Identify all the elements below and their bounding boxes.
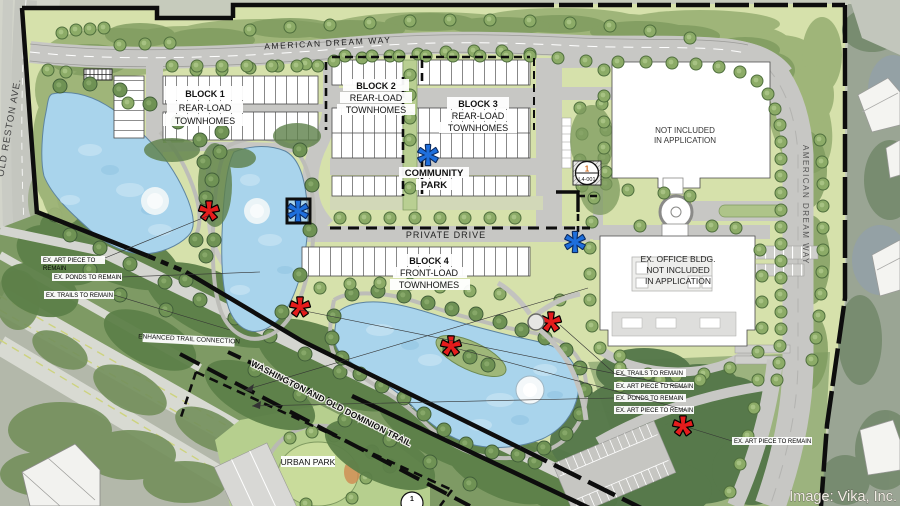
svg-text:REAR-LOAD: REAR-LOAD [179,103,232,113]
svg-text:BLOCK 1: BLOCK 1 [185,89,225,99]
svg-text:REAR-LOAD: REAR-LOAD [350,93,403,103]
svg-text:1: 1 [585,165,590,174]
svg-text:PARK: PARK [421,180,447,191]
svg-text:BLOCK 3: BLOCK 3 [458,99,498,109]
svg-text:FRONT-LOAD: FRONT-LOAD [400,268,459,278]
svg-text:URBAN PARK: URBAN PARK [281,457,336,467]
svg-text:REAR-LOAD: REAR-LOAD [452,111,505,121]
svg-text:TOWNHOMES: TOWNHOMES [175,116,235,126]
svg-text:BLOCK 2: BLOCK 2 [356,81,396,91]
svg-text:L4-001: L4-001 [578,177,595,183]
svg-text:IN APPLICATION: IN APPLICATION [654,136,716,145]
svg-text:REMAIN: REMAIN [43,266,66,272]
svg-text:NOT INCLUDED: NOT INCLUDED [655,126,715,135]
svg-text:PRIVATE DRIVE: PRIVATE DRIVE [406,230,486,240]
svg-text:EX. ART PIECE TO REMAIN: EX. ART PIECE TO REMAIN [734,439,811,445]
svg-text:EX. TRAILS TO REMAIN: EX. TRAILS TO REMAIN [46,293,113,299]
svg-text:TOWNHOMES: TOWNHOMES [346,105,406,115]
svg-text:EX. PONDS TO REMAIN: EX. PONDS TO REMAIN [616,396,683,402]
svg-text:EX. OFFICE BLDG.: EX. OFFICE BLDG. [640,254,715,264]
svg-text:IN APPLICATION: IN APPLICATION [645,276,711,286]
svg-text:BLOCK 4: BLOCK 4 [409,256,449,266]
svg-text:TOWNHOMES: TOWNHOMES [448,123,508,133]
svg-text:Image: Vika, Inc.: Image: Vika, Inc. [789,489,897,505]
svg-text:COMMUNITY: COMMUNITY [405,168,464,179]
svg-text:NOT INCLUDED: NOT INCLUDED [646,265,710,275]
svg-text:EX. ART PIECE TO: EX. ART PIECE TO [43,258,96,264]
svg-text:TOWNHOMES: TOWNHOMES [399,280,459,290]
svg-text:AMERICAN DREAM WAY: AMERICAN DREAM WAY [801,145,810,265]
svg-text:1: 1 [410,496,414,503]
svg-text:EX. PONDS TO REMAIN: EX. PONDS TO REMAIN [54,275,121,281]
